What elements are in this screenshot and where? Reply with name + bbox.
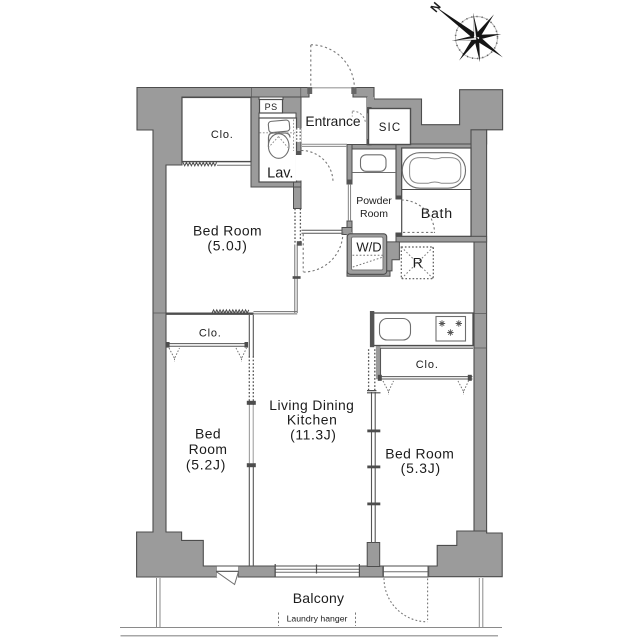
svg-text:SIC: SIC: [379, 122, 401, 134]
svg-text:Clo.: Clo.: [416, 359, 439, 371]
svg-text:Lav.: Lav.: [267, 166, 293, 182]
svg-text:PS: PS: [265, 102, 278, 112]
svg-text:Powder: Powder: [356, 195, 392, 207]
svg-text:Entrance: Entrance: [305, 114, 361, 129]
svg-text:Clo.: Clo.: [211, 129, 234, 141]
svg-text:(11.3J): (11.3J): [290, 427, 336, 443]
svg-text:(5.0J): (5.0J): [207, 237, 247, 253]
svg-text:Bed: Bed: [195, 426, 221, 442]
svg-text:Bed Room: Bed Room: [193, 222, 262, 238]
svg-text:Living Dining: Living Dining: [269, 397, 354, 413]
svg-text:Laundry hanger: Laundry hanger: [287, 614, 348, 624]
svg-text:W/D: W/D: [356, 240, 381, 255]
svg-text:R: R: [413, 254, 423, 270]
svg-text:Balcony: Balcony: [293, 590, 345, 606]
svg-text:Room: Room: [360, 208, 388, 220]
svg-text:Kitchen: Kitchen: [287, 412, 338, 428]
svg-text:(5.3J): (5.3J): [401, 460, 441, 476]
svg-text:(5.2J): (5.2J): [186, 457, 226, 473]
svg-text:Clo.: Clo.: [199, 327, 222, 339]
svg-text:Room: Room: [189, 441, 228, 457]
svg-text:Bath: Bath: [421, 206, 453, 222]
